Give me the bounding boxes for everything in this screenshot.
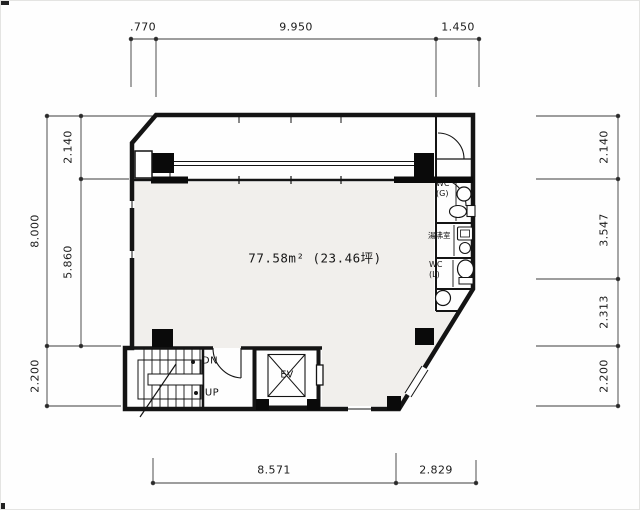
sanitary-fixtures xyxy=(436,187,476,306)
sink-icon xyxy=(457,187,471,201)
elevator-label: EV xyxy=(280,370,293,381)
wc-women-label: WC (L) xyxy=(429,260,443,279)
dim-left-outer-2: 2.200 xyxy=(29,359,42,393)
floor-area-label: 77.58m² (23.46坪) xyxy=(248,248,381,267)
kitchenette-label: 湯沸室 xyxy=(428,231,451,241)
stairs-down-label: DN xyxy=(202,356,218,367)
cistern-icon xyxy=(467,206,475,217)
dim-right-2: 3.547 xyxy=(598,213,611,247)
toilet-icon xyxy=(450,206,467,218)
window-band xyxy=(132,117,434,184)
sink-icon xyxy=(460,243,471,254)
dim-right-1: 2.140 xyxy=(598,130,611,164)
sink-icon xyxy=(436,291,451,306)
dim-bottom-1: 8.571 xyxy=(257,464,291,477)
dim-left-outer-1: 8.000 xyxy=(29,214,42,248)
dim-top-3: 1.450 xyxy=(441,21,475,34)
dim-top-1: .770 xyxy=(130,21,156,34)
pipe-shaft xyxy=(135,151,152,178)
dim-right-3: 2.313 xyxy=(598,295,611,329)
wc-men-label: WC (G) xyxy=(436,179,450,198)
stairs-up-label: UP xyxy=(205,388,219,399)
floorplan-canvas: .770 9.950 1.450 2.140 8.000 5.860 2.200… xyxy=(0,0,640,510)
dim-left-inner-2: 5.860 xyxy=(62,245,75,279)
scan-artifacts xyxy=(1,1,9,510)
toilet-icon xyxy=(458,260,474,278)
dim-bottom-2: 2.829 xyxy=(419,464,453,477)
dim-right-4: 2.200 xyxy=(598,359,611,393)
dim-top-2: 9.950 xyxy=(279,21,313,34)
dim-left-inner-1: 2.140 xyxy=(62,130,75,164)
dimension-top xyxy=(129,37,481,97)
